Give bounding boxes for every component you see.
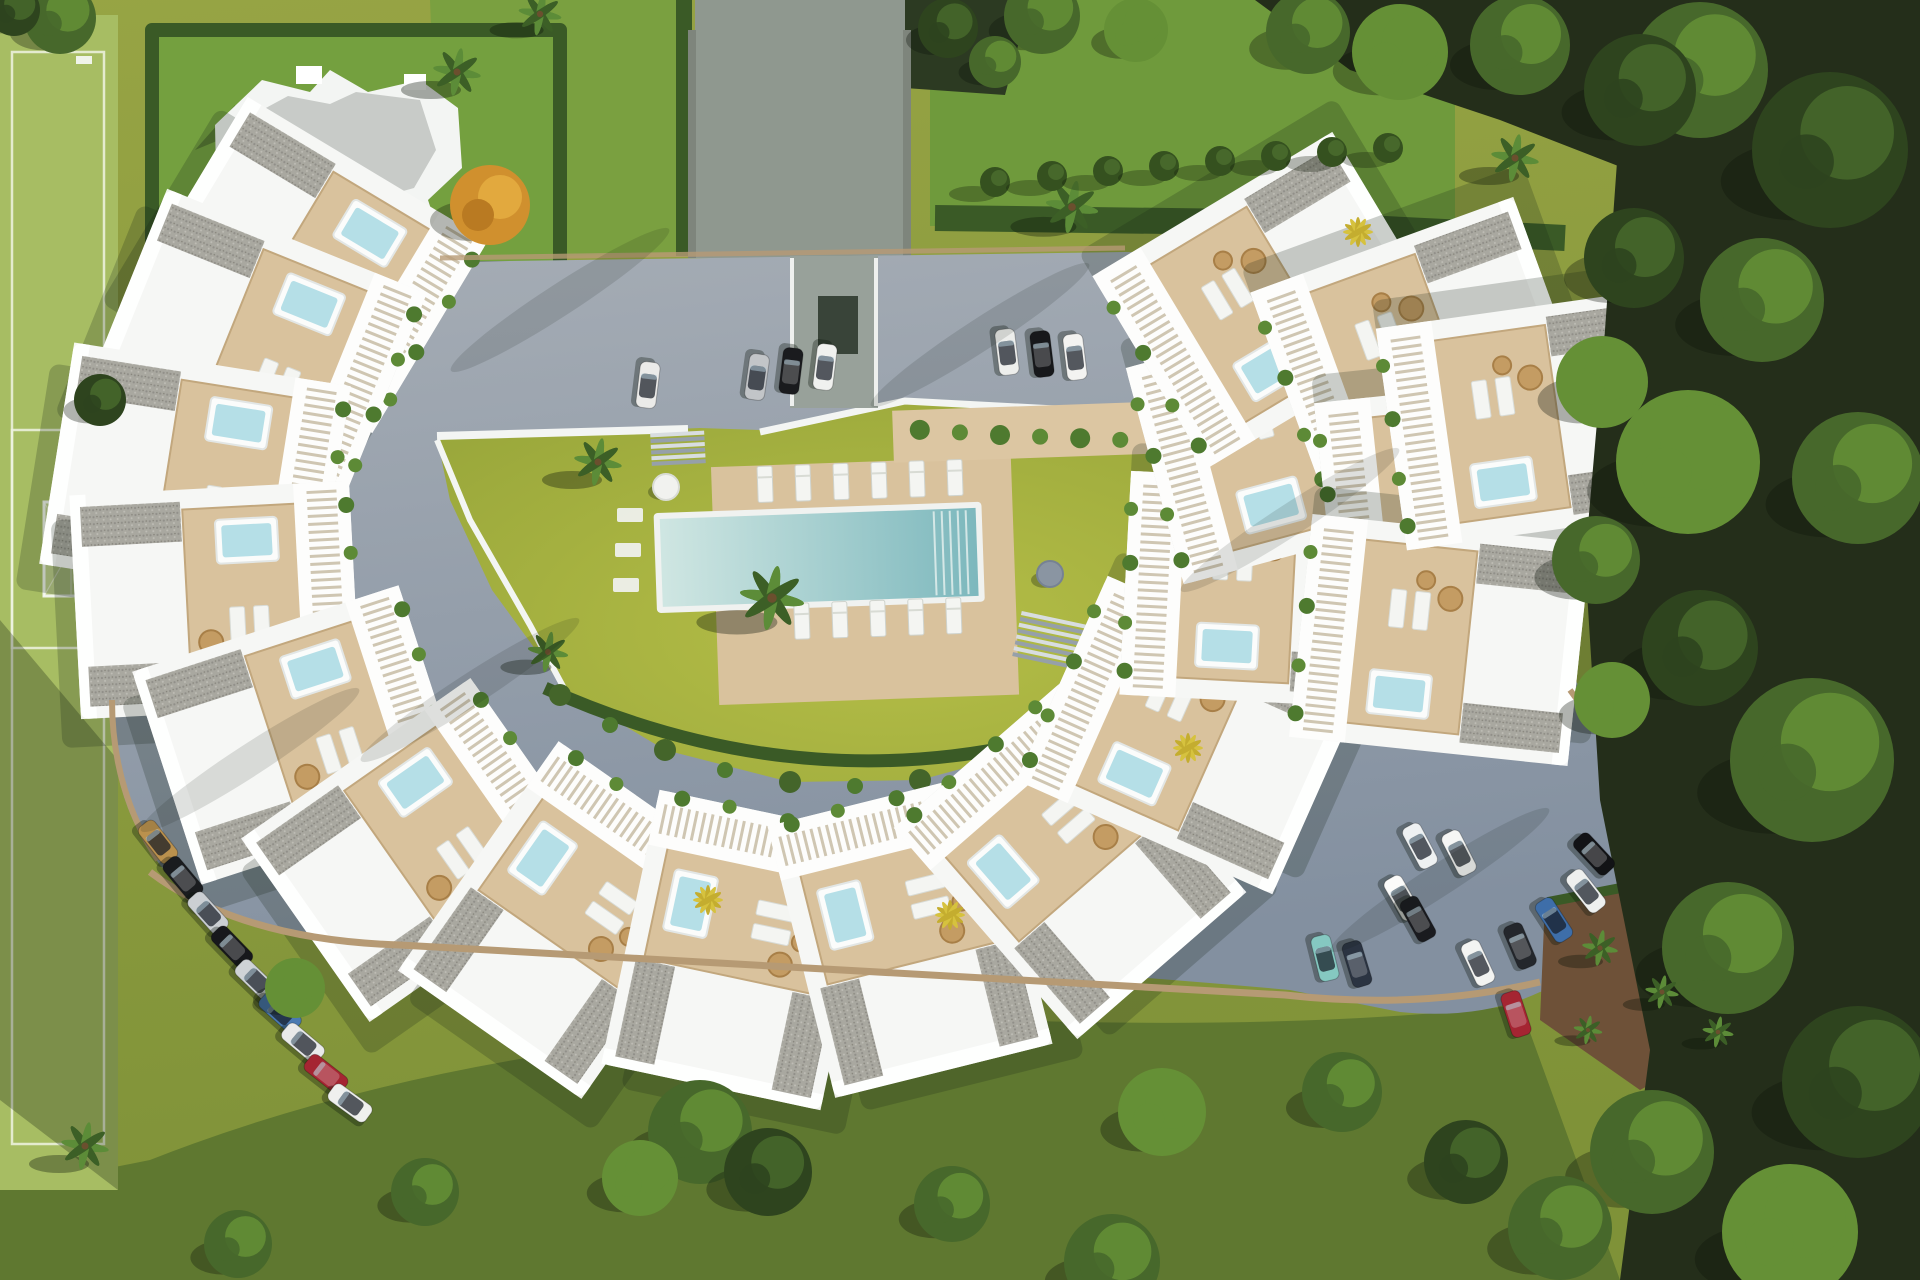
driveway-wall-right bbox=[903, 30, 911, 258]
entrance-bridge bbox=[790, 256, 878, 408]
shrub bbox=[654, 739, 676, 761]
shrub bbox=[717, 762, 733, 778]
sun-lounger bbox=[870, 600, 886, 637]
sun-lounger bbox=[947, 459, 963, 496]
villa-roof-box bbox=[296, 66, 322, 84]
shrub bbox=[602, 717, 618, 733]
step-pads bbox=[613, 508, 643, 592]
sun-lounger bbox=[909, 461, 925, 498]
sun-lounger bbox=[871, 462, 887, 499]
sun-lounger bbox=[946, 597, 962, 634]
sun-lounger bbox=[794, 603, 810, 640]
sun-lounger bbox=[832, 601, 848, 638]
deck-walkway bbox=[892, 402, 1149, 463]
swimming-pool bbox=[654, 502, 985, 613]
shrub bbox=[847, 778, 863, 794]
shrub bbox=[549, 684, 571, 706]
sun-lounger bbox=[757, 466, 773, 503]
sun-lounger bbox=[795, 465, 811, 502]
sun-lounger bbox=[908, 599, 924, 636]
shrub bbox=[779, 771, 801, 793]
driveway-wall-left bbox=[688, 30, 696, 258]
site-plan-canvas bbox=[0, 0, 1920, 1280]
step-pad bbox=[615, 543, 641, 557]
goal-top bbox=[76, 56, 92, 64]
step-pad bbox=[613, 578, 639, 592]
sun-lounger bbox=[833, 463, 849, 500]
step-pad bbox=[617, 508, 643, 522]
aerial-site-render bbox=[0, 0, 1920, 1280]
